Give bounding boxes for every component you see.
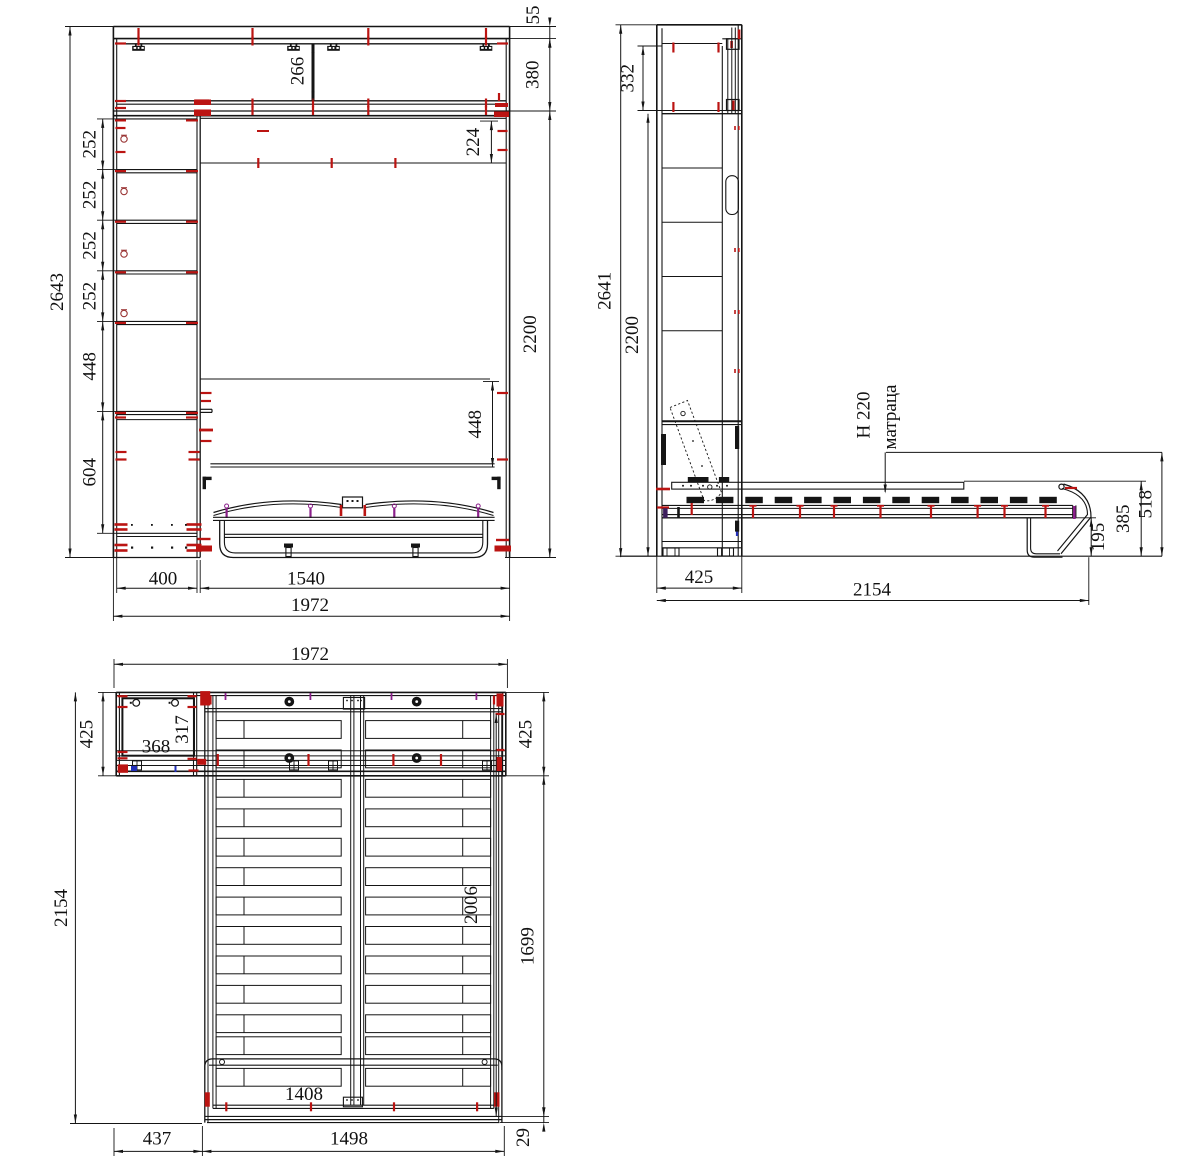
svg-text:448: 448 xyxy=(80,352,101,381)
svg-text:2200: 2200 xyxy=(622,316,643,354)
svg-text:317: 317 xyxy=(172,715,193,744)
svg-text:448: 448 xyxy=(465,410,486,439)
svg-text:400: 400 xyxy=(149,569,178,590)
svg-text:2200: 2200 xyxy=(520,315,541,353)
svg-text:1540: 1540 xyxy=(287,569,325,590)
svg-text:2154: 2154 xyxy=(853,580,892,601)
svg-text:518: 518 xyxy=(1136,490,1157,519)
svg-text:368: 368 xyxy=(142,737,171,758)
svg-text:252: 252 xyxy=(80,181,101,210)
svg-text:2006: 2006 xyxy=(461,886,482,924)
svg-text:380: 380 xyxy=(523,61,544,90)
svg-text:1972: 1972 xyxy=(291,644,329,665)
svg-text:252: 252 xyxy=(80,231,101,260)
svg-text:195: 195 xyxy=(1088,523,1109,552)
svg-text:266: 266 xyxy=(288,57,309,86)
svg-text:55: 55 xyxy=(523,6,544,25)
svg-text:332: 332 xyxy=(618,64,639,93)
svg-text:1699: 1699 xyxy=(518,927,539,965)
svg-text:2641: 2641 xyxy=(595,272,616,310)
svg-text:29: 29 xyxy=(513,1128,534,1147)
svg-text:437: 437 xyxy=(143,1129,172,1150)
svg-text:224: 224 xyxy=(463,127,484,156)
svg-text:385: 385 xyxy=(1113,504,1134,533)
svg-text:H 220: H 220 xyxy=(854,392,875,439)
svg-text:1972: 1972 xyxy=(291,595,329,616)
svg-text:425: 425 xyxy=(77,720,98,749)
svg-text:2154: 2154 xyxy=(51,889,72,928)
svg-text:2643: 2643 xyxy=(47,273,68,311)
svg-text:1408: 1408 xyxy=(285,1084,323,1105)
svg-text:252: 252 xyxy=(80,282,101,311)
svg-text:425: 425 xyxy=(685,567,714,588)
svg-text:425: 425 xyxy=(516,720,537,749)
svg-text:матраца: матраца xyxy=(880,384,901,449)
svg-text:1498: 1498 xyxy=(330,1129,368,1150)
svg-text:252: 252 xyxy=(80,130,101,159)
svg-text:604: 604 xyxy=(80,458,101,487)
